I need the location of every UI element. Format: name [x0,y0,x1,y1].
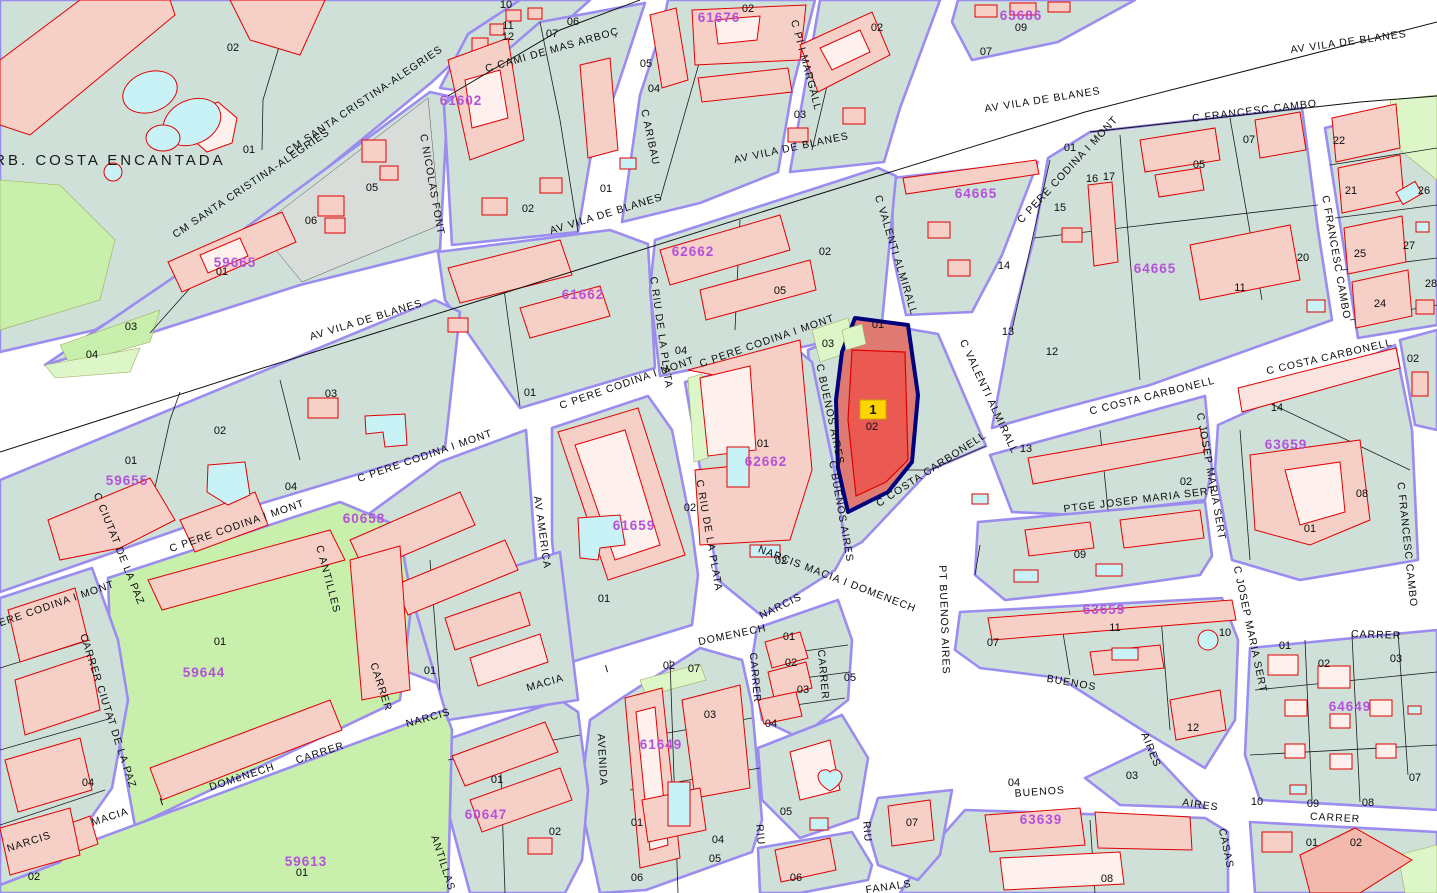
parcel-number-label: 02 [819,246,831,258]
parcel-number-label: 02 [522,203,534,215]
block-code-label[interactable]: 64665 [955,186,998,201]
parcel-number-label: 07 [1243,134,1255,146]
parcel-number-label: 02 [871,22,883,34]
parcel-number-label: 01 [1306,837,1318,849]
parcel-number-label: 01 [243,144,255,156]
parcel-number-label: 01 [600,183,612,195]
parcel-number-label: 11 [1109,622,1120,634]
urbanization-name-label: URB. COSTA ENCANTADA [0,152,226,169]
parcel-number-label: 14 [998,260,1010,272]
block-code-label[interactable]: 59644 [183,665,226,680]
parcel-number-label: 01 [1304,523,1316,535]
parcel-number-label: 08 [1101,873,1113,885]
parcel-number-label: 03 [797,684,809,696]
parcel-number-label: 06 [631,872,643,884]
parcel-number-label: 06 [567,16,579,28]
parcel-number-label: 01 [783,631,795,643]
parcel-number-label: 28 [1425,278,1437,290]
street-name-label: CARRER [1310,811,1361,826]
block-code-label[interactable]: 64649 [1329,699,1372,714]
parcel-number-label: 07 [906,817,918,829]
parcel-number-label: 03 [704,709,716,721]
parcel-number-label: 08 [1356,488,1368,500]
parcel-number-label: 01 [757,438,769,450]
cadastral-map-viewport[interactable]: 1 02 CM SANTA CRISTINA-ALEGRIESCM SANTA … [0,0,1437,893]
parcel-number-label: 26 [1418,185,1430,197]
block-code-label[interactable]: 60658 [343,511,386,526]
parcel-number-label: 02 [1350,837,1362,849]
block-code-label[interactable]: 64665 [1134,261,1177,276]
parcel-number-label: 01 [491,774,503,786]
parcel-number-label: 10 [1219,627,1231,639]
block-code-label[interactable]: 61662 [562,287,605,302]
street-name-label: BUENOS [1014,784,1065,799]
parcel-number-label: 25 [1354,248,1366,260]
parcel-number-label: 12 [502,31,514,43]
block-code-label[interactable]: 62662 [672,244,715,259]
block-code-label[interactable]: 59613 [285,854,328,869]
parcel-number-label: 10 [1251,796,1263,808]
street-name-label: CARRER [1351,628,1402,642]
parcel-number-label: 04 [86,349,98,361]
parcel-number-label: 05 [640,58,652,70]
parcel-number-label: 02 [1318,658,1330,670]
parcel-number-label: 01 [424,665,436,677]
parcel-number-label: 02 [663,660,675,672]
street-name-label: AV VILA DE BLANES [1290,28,1408,56]
parcel-number-label: 02 [1407,353,1419,365]
parcel-number-label: 20 [1297,252,1309,264]
parcel-number-label: 06 [790,872,802,884]
selected-parcel-number: 02 [866,421,878,433]
parcel-number-label: 01 [1279,640,1291,652]
parcel-number-label: 02 [28,871,40,883]
cadastral-map[interactable]: 1 02 CM SANTA CRISTINA-ALEGRIESCM SANTA … [0,0,1437,893]
parcel-number-label: 12 [1046,346,1058,358]
parcel-number-label: 07 [1409,772,1421,784]
parcel-number-label: 05 [366,182,378,194]
parcel-number-label: 14 [1271,402,1283,414]
parcel-number-label: 02 [214,425,226,437]
selected-parcel-marker-label: 1 [869,402,876,417]
parcel-number-label: 22 [1333,135,1345,147]
block-code-label[interactable]: 61659 [613,518,656,533]
parcel-number-label: 04 [648,83,660,95]
street-name-label: RIU [753,824,767,846]
parcel-number-label: 01 [214,636,226,648]
street-name-label: AV VILA DE BLANES [984,85,1102,115]
parcel-number-label: 02 [684,502,696,514]
parcel-number-label: 24 [1374,298,1386,310]
block-code-label[interactable]: 61676 [698,10,741,25]
block-code-label[interactable]: 61649 [640,737,683,752]
parcel-number-label: 04 [675,345,687,357]
parcel-number-label: 02 [549,826,561,838]
parcel-number-label: 06 [305,215,317,227]
block-code-label[interactable]: 63659 [1083,602,1126,617]
parcel-number-label: 07 [546,28,558,40]
parcel-number-label: 03 [325,388,337,400]
parcel-number-label: 05 [1193,159,1205,171]
parcel-number-label: 03 [1126,770,1138,782]
parcel-number-label: 09 [1307,798,1319,810]
parcel-number-label: 01 [1064,142,1076,154]
parcel-number-label: 01 [524,387,536,399]
parcel-number-label: 27 [1403,240,1415,252]
parcel-number-label: 07 [987,637,999,649]
parcel-number-label: 03 [822,338,834,350]
parcel-number-label: 03 [794,109,806,121]
street-name-label: PT BUENOS AIRES [936,565,952,675]
parcel-number-label: 03 [125,321,137,333]
parcel-number-label: 04 [765,718,777,730]
parcel-number-label: 16 [1086,173,1098,185]
block-code-label[interactable]: 62662 [745,454,788,469]
parcel-number-label: 04 [712,834,724,846]
parcel-number-label: 21 [1345,185,1357,197]
parcel-number-label: 09 [1074,549,1086,561]
parcel-number-label: 08 [1362,797,1374,809]
parcel-number-label: 04 [82,777,94,789]
parcel-number-label: 11 [1234,282,1245,294]
parcel-number-label: 05 [780,806,792,818]
parcel-number-label: 02 [775,555,787,567]
parcel-number-label: 02 [742,3,754,15]
parcel-number-label: 03 [1390,653,1402,665]
block-code-label[interactable]: 59665 [214,255,257,270]
parcel-number-label: 15 [1054,202,1066,214]
parcel-number-label: 05 [774,285,786,297]
block-code-label[interactable]: 61602 [440,93,483,108]
parcel-number-label: 04 [1008,777,1020,789]
parcel-number-label: 01 [598,593,610,605]
parcel-number-label: 07 [688,663,700,675]
parcel-number-label: 02 [227,42,239,54]
block-code-label[interactable]: 59655 [106,473,149,488]
parcel-number-label: 07 [980,46,992,58]
parcel-number-label: 01 [872,319,884,331]
block-code-label[interactable]: 63686 [1000,8,1043,23]
street-name-label: AIRES [1182,797,1220,814]
parcel-number-label: 13 [1002,326,1014,338]
parcel-number-label: 05 [844,672,856,684]
parcel-number-label: 01 [631,817,643,829]
parcel-number-label: 10 [500,0,512,11]
street-name-label: I [604,663,611,676]
block-code-label[interactable]: 60647 [465,807,508,822]
parcel-number-label: 02 [1180,476,1192,488]
parcel-number-label: 04 [285,481,297,493]
block-code-label[interactable]: 63639 [1020,812,1063,827]
street-name-label: FANALS [865,878,913,893]
parcel-number-label: 13 [1020,443,1032,455]
street-name-label: RIU [860,821,874,843]
parcel-number-label: 01 [125,455,137,467]
parcel-number-label: 17 [1103,171,1115,183]
parcel-number-label: 05 [709,853,721,865]
parcel-number-label: 02 [785,657,797,669]
parcel-number-label: 09 [1015,22,1027,34]
parcel-number-label: 12 [1187,722,1199,734]
block-code-label[interactable]: 63659 [1265,437,1308,452]
